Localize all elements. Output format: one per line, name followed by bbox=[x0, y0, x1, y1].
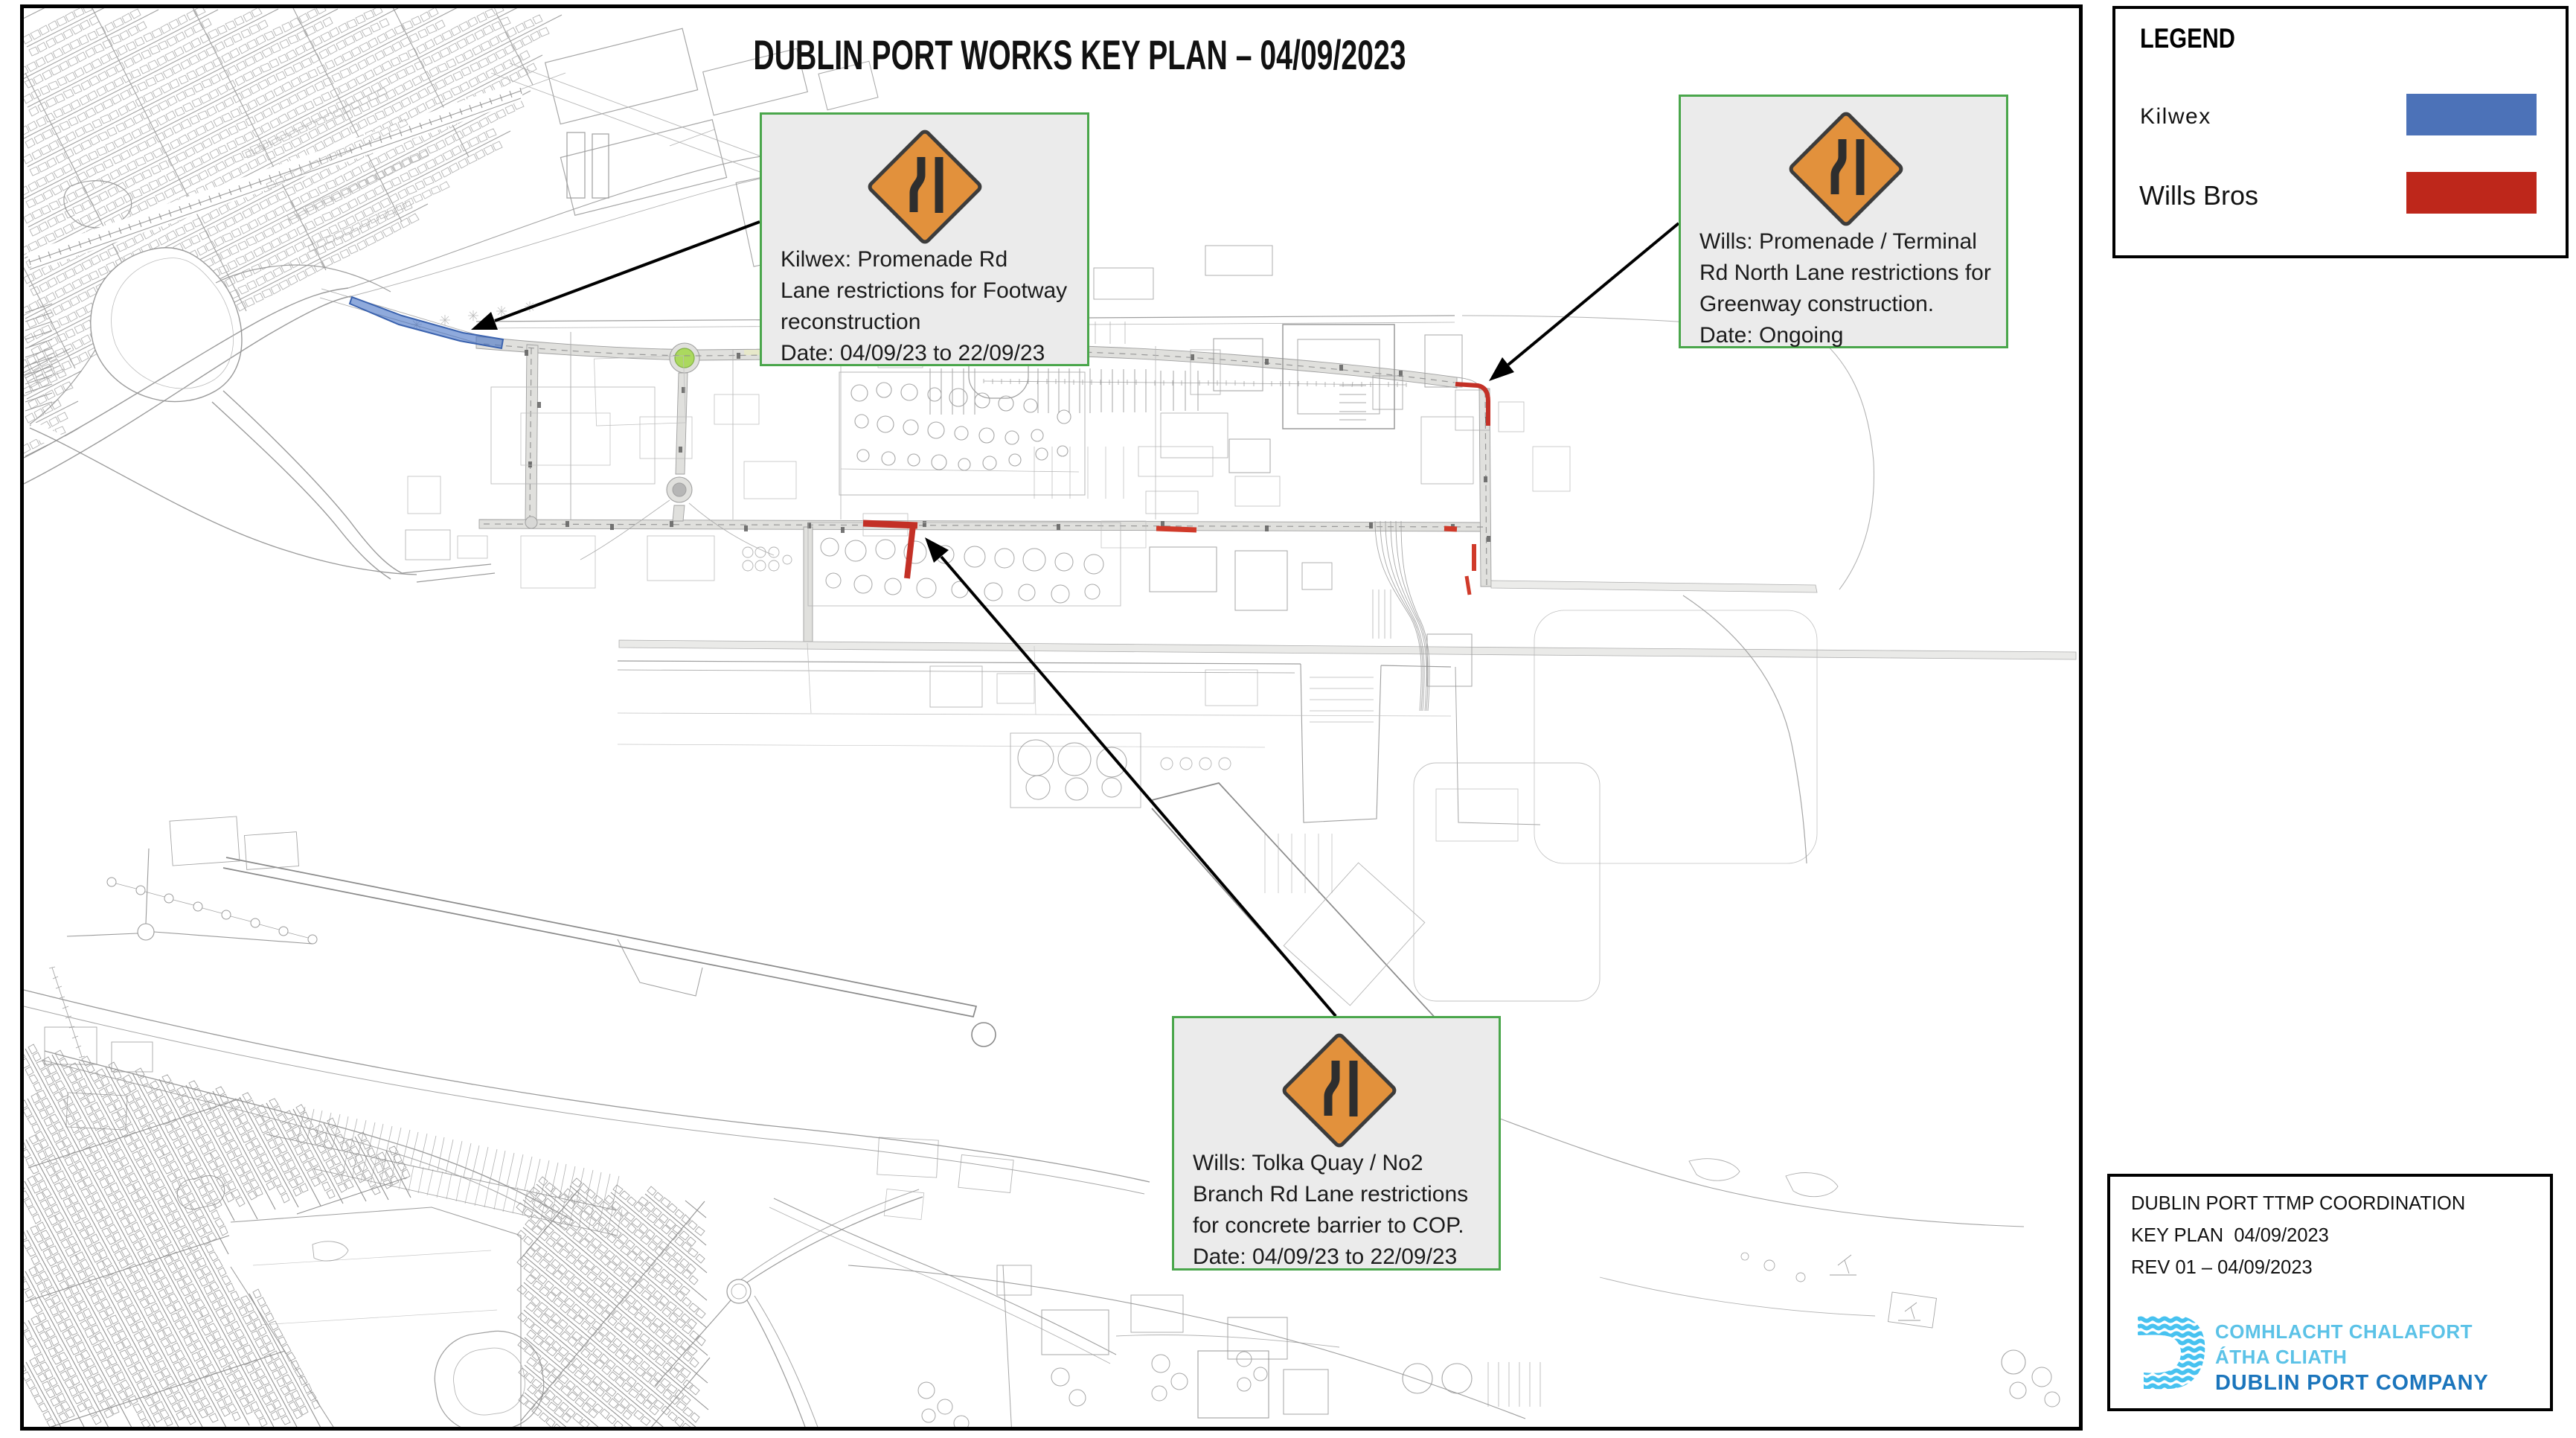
svg-text:DUBLIN PORT COMPANY: DUBLIN PORT COMPANY bbox=[2215, 1371, 2489, 1395]
svg-text:COMHLACHT CHALAFORT: COMHLACHT CHALAFORT bbox=[2215, 1320, 2473, 1343]
svg-text:ÁTHA CLIATH: ÁTHA CLIATH bbox=[2215, 1346, 2347, 1368]
